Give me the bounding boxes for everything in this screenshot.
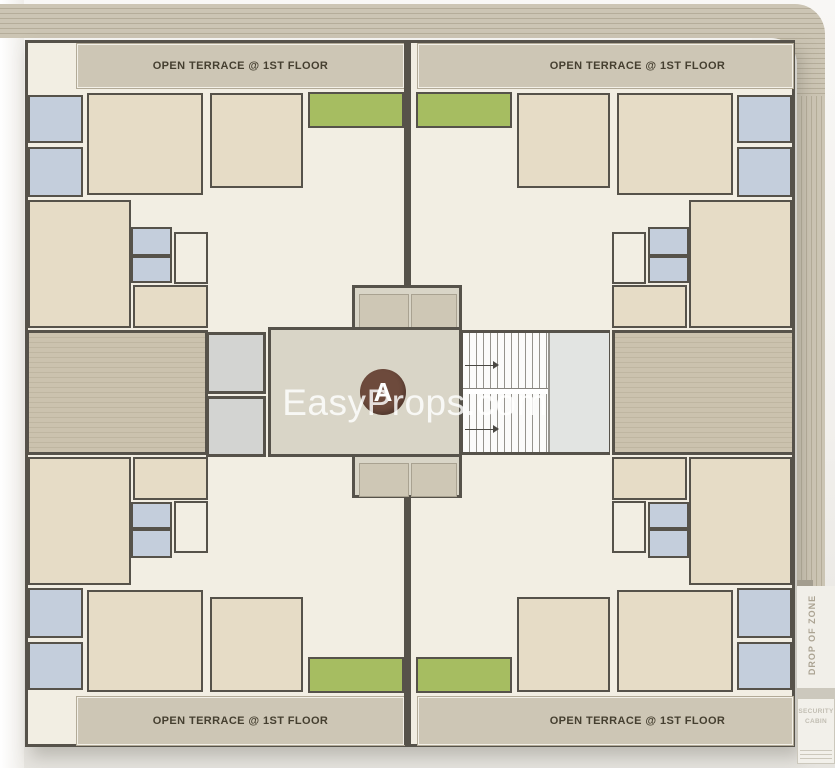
security-cabin-label: SECURITY CABIN [798, 707, 834, 728]
security-cabin-box: SECURITY CABIN [797, 698, 835, 764]
utility [174, 501, 208, 553]
bedroom-3 [689, 200, 792, 328]
kitchen [133, 285, 208, 328]
kitchen [612, 457, 687, 500]
balcony-green [308, 657, 404, 693]
entry-vestibule-bottom [352, 453, 462, 498]
bedroom-3 [28, 200, 131, 328]
utility [612, 501, 646, 553]
block-letter: A [374, 377, 393, 408]
toilet-corner-2 [28, 147, 83, 197]
utility [174, 232, 208, 284]
entry-vestibule-top [352, 285, 462, 330]
toilet-corner-2 [737, 588, 792, 638]
stair-arrow-head [493, 425, 499, 433]
stair-flight-upper [463, 333, 548, 388]
left-ground-strip [0, 0, 24, 768]
terrace-label: OPEN TERRACE @ 1ST FLOOR [153, 715, 329, 727]
toilet-mid-1 [131, 529, 172, 558]
security-cabin-line [800, 754, 832, 755]
kitchen [612, 285, 687, 328]
stair-flight-lower [463, 394, 548, 452]
open-terrace-bottom-right: OPEN TERRACE @ 1ST FLOOR [418, 697, 793, 745]
toilet-corner-1 [28, 642, 83, 690]
staircase [460, 330, 610, 455]
entry-door-cell [359, 463, 409, 497]
stair-direction-arrow [465, 365, 493, 366]
utility [612, 232, 646, 284]
toilet-mid-2 [131, 502, 172, 529]
entry-door-cell [411, 463, 457, 497]
bedroom-1 [87, 93, 203, 195]
stair-landing [548, 333, 609, 452]
toilet-mid-1 [131, 227, 172, 256]
bedroom-2 [517, 93, 610, 188]
bedroom-2 [210, 93, 303, 188]
security-cabin-divider [797, 688, 835, 698]
bedroom-3 [28, 457, 131, 585]
terrace-label: OPEN TERRACE @ 1ST FLOOR [153, 60, 329, 72]
toilet-corner-2 [28, 588, 83, 638]
deck-sitout-left [28, 330, 208, 455]
toilet-corner-1 [28, 95, 83, 143]
toilet-mid-1 [648, 227, 689, 256]
spine-wall-bottom [404, 496, 411, 745]
stair-arrow-head [493, 361, 499, 369]
bedroom-1 [617, 590, 733, 692]
block-marker-circle: A [360, 369, 406, 415]
security-cabin-line [800, 750, 832, 751]
terrace-label: OPEN TERRACE @ 1ST FLOOR [550, 715, 726, 727]
compound-wall-right [797, 96, 825, 586]
unit-top-left [25, 90, 405, 330]
spine-wall-top [404, 43, 411, 287]
toilet-corner-2 [737, 147, 792, 197]
toilet-mid-2 [648, 502, 689, 529]
bedroom-2 [517, 597, 610, 692]
kitchen [133, 457, 208, 500]
entry-door-cell [359, 294, 409, 328]
deck-sitout-right [612, 330, 793, 455]
unit-bottom-left [25, 455, 405, 695]
lift-2 [206, 396, 266, 457]
balcony-green [308, 92, 404, 128]
toilet-mid-1 [648, 529, 689, 558]
balcony-green [416, 92, 512, 128]
drop-zone-tick [797, 580, 813, 586]
open-terrace-top-right: OPEN TERRACE @ 1ST FLOOR [418, 44, 793, 88]
compound-wall-top [0, 4, 763, 38]
floor-plan-canvas: OPEN TERRACE @ 1ST FLOOR OPEN TERRACE @ … [0, 0, 835, 768]
stair-direction-arrow [465, 429, 493, 430]
open-terrace-top-left: OPEN TERRACE @ 1ST FLOOR [77, 44, 404, 88]
toilet-mid-2 [131, 256, 172, 283]
drop-zone-label: DROP OF ZONE [805, 595, 819, 675]
toilet-corner-1 [737, 95, 792, 143]
security-cabin-line [800, 758, 832, 759]
balcony-green [416, 657, 512, 693]
bedroom-2 [210, 597, 303, 692]
toilet-mid-2 [648, 256, 689, 283]
entry-door-cell [411, 294, 457, 328]
bedroom-3 [689, 457, 792, 585]
bedroom-1 [87, 590, 203, 692]
toilet-corner-1 [737, 642, 792, 690]
unit-top-right [415, 90, 795, 330]
terrace-label: OPEN TERRACE @ 1ST FLOOR [550, 60, 726, 72]
unit-bottom-right [415, 455, 795, 695]
bedroom-1 [617, 93, 733, 195]
lift-1 [206, 332, 266, 394]
open-terrace-bottom-left: OPEN TERRACE @ 1ST FLOOR [77, 697, 404, 745]
